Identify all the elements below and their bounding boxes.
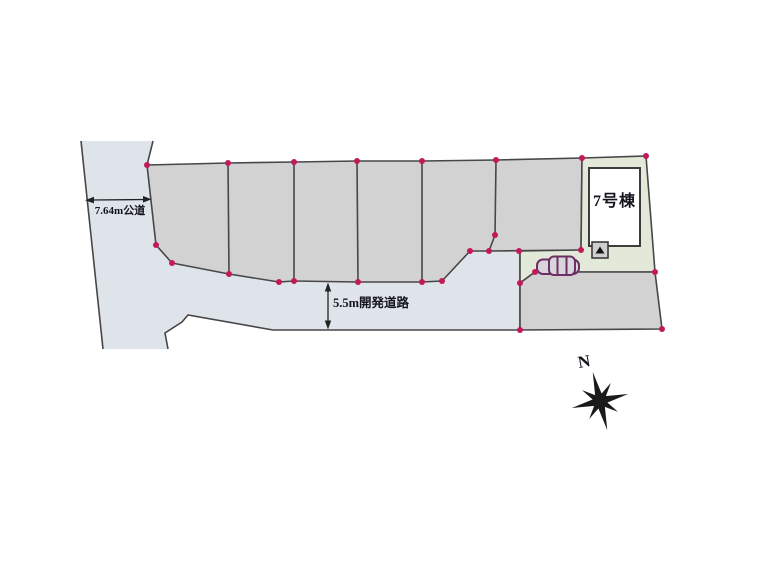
west-road-width-label: 7.64m公道	[88, 206, 152, 217]
lot-divider-1	[228, 163, 229, 274]
lot-divider-3	[357, 161, 358, 282]
lot-south-area	[520, 272, 662, 330]
compass-rose-icon	[565, 365, 636, 437]
building-7-label: 7号棟	[589, 194, 640, 210]
car-icon	[537, 257, 579, 276]
site-plan-drawing	[0, 0, 764, 584]
dev-road-width-label: 5.5m開発道路	[333, 297, 409, 310]
site-plan-canvas: 7.64m公道 5.5m開発道路 7号棟 N	[0, 0, 764, 584]
